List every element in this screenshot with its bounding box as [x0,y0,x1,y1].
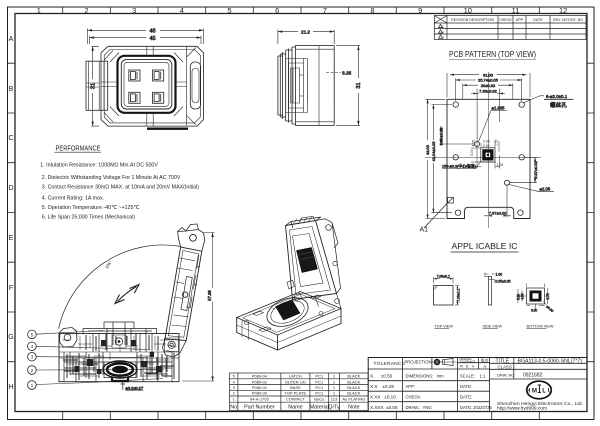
svg-text:TOP PLATE: TOP PLATE [285,391,307,396]
svg-text:3.00: 3.00 [470,149,474,156]
svg-text:45: 45 [149,36,155,42]
svg-text:DATE: 20220725: DATE: 20220725 [460,405,492,410]
svg-text:7.63±0.02: 7.63±0.02 [479,88,498,93]
svg-text:X.XXX ±0.05: X.XXX ±0.05 [370,405,398,410]
svg-text:4: 4 [31,344,34,350]
svg-text:5. Operation Temperature -40℃: 5. Operation Temperature -40℃ ~+125℃ [42,205,140,211]
svg-text:3.00: 3.00 [531,309,537,313]
svg-text:A: A [484,364,487,369]
svg-text:Au PLATING: Au PLATING [342,397,365,402]
svg-text:E: E [9,235,14,242]
svg-text:BeCu: BeCu [314,397,324,402]
svg-text:4. Current Rating: 1A max.: 4. Current Rating: 1A max. [42,195,104,201]
svg-text:CLASS: CLASS [498,364,512,369]
svg-text:PC1: PC1 [315,391,324,396]
svg-text:DRW..NO: DRW..NO [497,372,514,377]
svg-text:X. ±0.50: X. ±0.50 [370,373,393,378]
svg-text:F: F [9,285,13,292]
svg-text:10: 10 [464,6,472,15]
svg-text:DIMENSIONS: mm: DIMENSIONS: mm [406,373,445,378]
svg-text:20±0.02: 20±0.02 [481,83,496,88]
svg-text:Name: Name [288,405,302,411]
svg-text:BLACK: BLACK [347,374,360,379]
svg-text:1.50: 1.50 [495,139,499,146]
svg-text:31: 31 [91,83,97,89]
svg-text:SCALE: 1:1: SCALE: 1:1 [460,373,486,378]
svg-text:2: 2 [84,6,88,15]
svg-text:±0.1x0.17: ±0.1x0.17 [126,386,144,391]
svg-text:9.37±0.02: 9.37±0.02 [533,160,538,179]
svg-text:0921682: 0921682 [523,373,543,379]
svg-text:5: 5 [31,332,34,338]
svg-text:REV. NOTICE. NO: REV. NOTICE. NO [553,18,583,22]
svg-text:REVISION DESCRIPTION: REVISION DESCRIPTION [451,18,494,22]
svg-text:12: 12 [559,6,567,15]
svg-text:BOTTOM VIEW: BOTTOM VIEW [527,325,554,329]
svg-text:APPL ICABLE IC: APPL ICABLE IC [452,242,518,251]
svg-text:8: 8 [370,6,374,15]
svg-text:1. Intulation Resistance: 1000: 1. Intulation Resistance: 1000MΩ Min.At … [40,163,158,169]
svg-text:BGA113-0.5-0060-SNL(7*7): BGA113-0.5-0060-SNL(7*7) [518,358,583,364]
svg-text:6. Life Span 25,000 Times (Mec: 6. Life Span 25,000 Times (Mechanical) [42,214,136,220]
svg-text:3: 3 [31,355,34,361]
svg-text:0.55±0.05: 0.55±0.05 [496,280,511,284]
svg-text:http://www.hyd999.com: http://www.hyd999.com [497,406,548,411]
svg-text:D: D [8,185,13,192]
svg-text:0.50: 0.50 [483,144,490,148]
svg-text:11: 11 [512,6,520,15]
svg-text:H: H [8,384,13,391]
svg-text:4.25: 4.25 [472,140,476,147]
svg-text:1.00: 1.00 [496,273,503,277]
svg-text:CONTACT: CONTACT [286,397,306,402]
svg-text:R E V: R E V [460,364,475,369]
svg-text:Q/Ty: Q/Ty [328,405,340,411]
svg-text:DATE:: DATE: [460,384,472,389]
svg-text:Material: Material [310,405,329,411]
svg-text:2: 2 [31,368,34,374]
svg-text:2.25: 2.25 [497,163,504,167]
svg-text:BLACK: BLACK [347,379,360,384]
svg-text:P080-02: P080-02 [252,379,268,384]
svg-text:P080-04: P080-04 [252,374,268,379]
svg-text:PC1: PC1 [315,374,324,379]
svg-text:TOLERANCE: TOLERANCE [374,361,406,367]
svg-text:BLACK: BLACK [347,385,360,390]
svg-text:TOP VIEW: TOP VIEW [434,325,453,329]
svg-text:BASE: BASE [290,385,301,390]
svg-text:6-⌀2.0±0.1: 6-⌀2.0±0.1 [546,94,568,99]
svg-text:A: A [9,36,14,43]
svg-text:31: 31 [356,82,362,88]
svg-text:6: 6 [275,6,279,15]
svg-text:7.37±0.02: 7.37±0.02 [489,210,508,215]
svg-text:SIDE VIEW: SIDE VIEW [483,325,503,329]
svg-text:21.2: 21.2 [301,30,310,35]
svg-text:B: B [9,86,14,93]
svg-text:1: 1 [37,6,41,15]
svg-text:PROJECTION: PROJECTION [405,360,432,365]
svg-text:C: C [8,135,13,142]
svg-text:43.00: 43.00 [425,144,430,155]
svg-text:螺丝孔: 螺丝孔 [550,101,567,109]
svg-text:5.75: 5.75 [546,293,550,299]
svg-text:PC1: PC1 [315,379,324,384]
svg-text:⌀1.635: ⌀1.635 [492,105,506,110]
svg-text:3: 3 [132,6,136,15]
svg-text:113: 113 [331,397,338,402]
svg-text:DATE: DATE [533,18,543,22]
svg-text:7.06±0.1: 7.06±0.1 [437,275,450,279]
svg-text:CHECK: CHECK [499,18,512,22]
svg-text:G: G [8,334,13,341]
svg-text:4: 4 [180,6,184,15]
svg-text:A1: A1 [420,227,429,234]
svg-text:153-⌀0.3(中心/标准): 153-⌀0.3(中心/标准) [442,164,477,169]
svg-text:APP: APP [516,18,524,22]
svg-text:2. Dielectric Withstanding Vol: 2. Dielectric Withstanding Voltage For 1… [42,175,181,181]
svg-text:LATCH: LATCH [289,374,302,379]
svg-text:5: 5 [227,6,231,15]
svg-text:P080-00: P080-00 [252,391,268,396]
svg-text:版次: 版次 [481,358,489,363]
svg-text:3.25: 3.25 [342,71,352,77]
svg-text:1: 1 [31,383,34,389]
svg-text:OUTER LID: OUTER LID [285,379,306,384]
svg-text:3. Contact Resistance 30mΩ MAX: 3. Contact Resistance 30mΩ MAX. at 10mA … [42,185,200,191]
svg-text:CHECK:: CHECK: [406,395,422,400]
svg-text:9: 9 [418,6,422,15]
svg-text:9.30±0.02: 9.30±0.02 [439,127,444,146]
svg-text:APP:: APP: [406,384,416,389]
svg-text:DRAW.: YNG: DRAW.: YNG [406,405,432,410]
svg-text:41.04±0.05: 41.04±0.05 [431,141,436,162]
svg-text:PERFORMANCE: PERFORMANCE [56,143,101,152]
svg-text:DATE:: DATE: [460,395,472,400]
svg-text:Part Number: Part Number [244,405,275,411]
svg-text:31.00: 31.00 [483,72,494,77]
svg-text:P080-01: P080-01 [252,385,268,390]
svg-text:⌀2.05: ⌀2.05 [540,187,551,192]
svg-text:04-A-1705: 04-A-1705 [250,397,269,402]
svg-text:57.96: 57.96 [207,290,212,301]
svg-text:PC1: PC1 [315,385,324,390]
svg-text:7.06±0.1: 7.06±0.1 [456,289,460,302]
svg-text:7: 7 [323,6,327,15]
svg-text:No: No [230,405,237,411]
svg-text:X.XX ±0.10: X.XX ±0.10 [370,395,396,400]
svg-text:48: 48 [149,29,155,35]
svg-text:4.50: 4.50 [521,293,525,299]
svg-text:PCB PATTERN (TOP VIEW): PCB PATTERN (TOP VIEW) [449,50,536,59]
svg-text:X.X ±0.25: X.X ±0.25 [370,384,394,389]
svg-text:BLACK: BLACK [347,391,360,396]
svg-text:Note: Note [348,405,359,411]
